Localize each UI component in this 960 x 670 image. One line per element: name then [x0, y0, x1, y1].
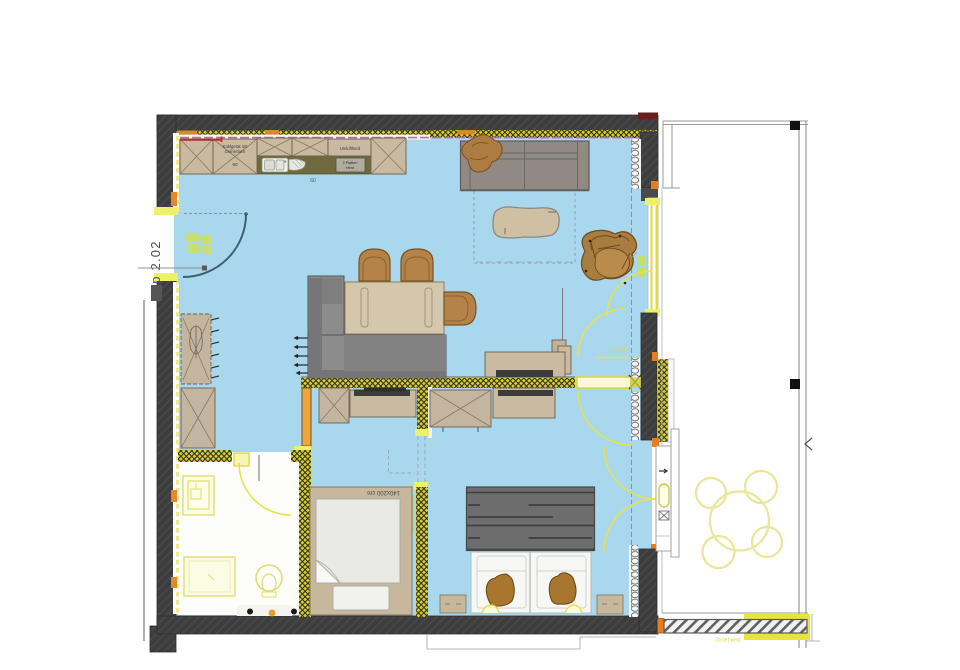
svg-text:60: 60 [310, 178, 316, 184]
svg-text:Gefrierfach: Gefrierfach [225, 149, 246, 154]
svg-text:08.10: 08.10 [609, 347, 626, 354]
svg-text:140x200 cm: 140x200 cm [367, 489, 400, 495]
svg-text:60: 60 [232, 162, 238, 167]
svg-text:Herd: Herd [346, 166, 354, 170]
svg-text:2 Platten: 2 Platten [343, 161, 358, 165]
svg-text:7a tief west: 7a tief west [715, 638, 741, 644]
svg-text:Umluftherd: Umluftherd [340, 146, 361, 151]
